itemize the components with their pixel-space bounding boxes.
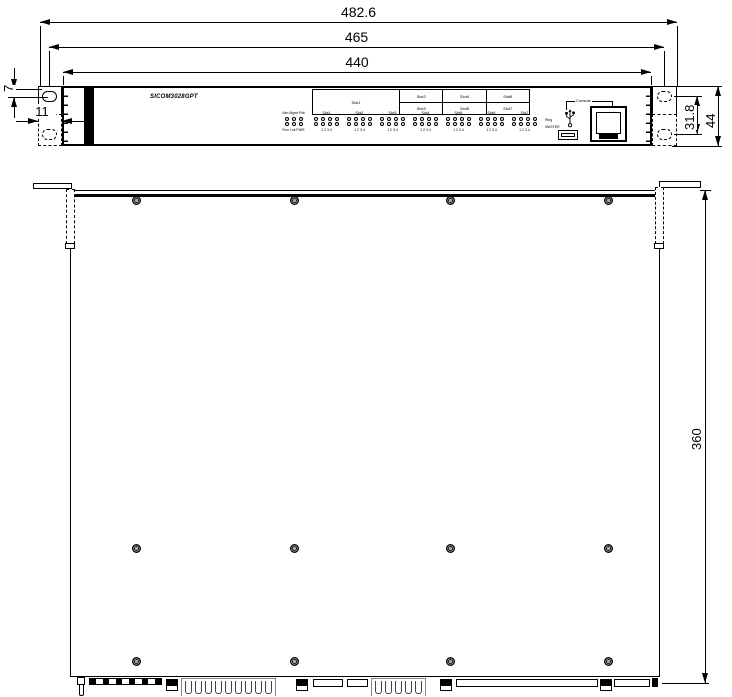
top-view: 360 — [0, 0, 732, 697]
terminal-pin — [375, 681, 382, 694]
terminal-pin — [225, 681, 232, 694]
terminal-block — [371, 678, 426, 696]
terminal-pin — [265, 681, 272, 694]
connector-lug — [296, 679, 308, 691]
connector-lug — [600, 679, 612, 691]
terminal-pin — [385, 681, 392, 694]
terminal-pin — [185, 681, 192, 694]
connector-lug — [440, 679, 452, 691]
rear-connector — [614, 679, 650, 687]
terminal-pin — [195, 681, 202, 694]
rear-connector — [313, 679, 343, 687]
terminal-pin — [255, 681, 262, 694]
terminal-pin — [215, 681, 222, 694]
terminal-pin — [235, 681, 242, 694]
rear-connector — [456, 679, 598, 687]
rear-connector-end — [652, 678, 658, 687]
terminal-pin — [395, 681, 402, 694]
terminal-pin — [415, 681, 422, 694]
rear-connector — [347, 679, 368, 687]
terminal-block — [181, 678, 276, 696]
rear-connectors — [0, 0, 732, 697]
terminal-pin — [405, 681, 412, 694]
terminal-pin — [245, 681, 252, 694]
ground-post-tip — [79, 684, 84, 696]
terminal-pin — [205, 681, 212, 694]
technical-drawing-canvas: 482.6 465 440 — [0, 0, 732, 697]
vent-strip — [89, 678, 162, 685]
connector-lug — [166, 679, 178, 691]
